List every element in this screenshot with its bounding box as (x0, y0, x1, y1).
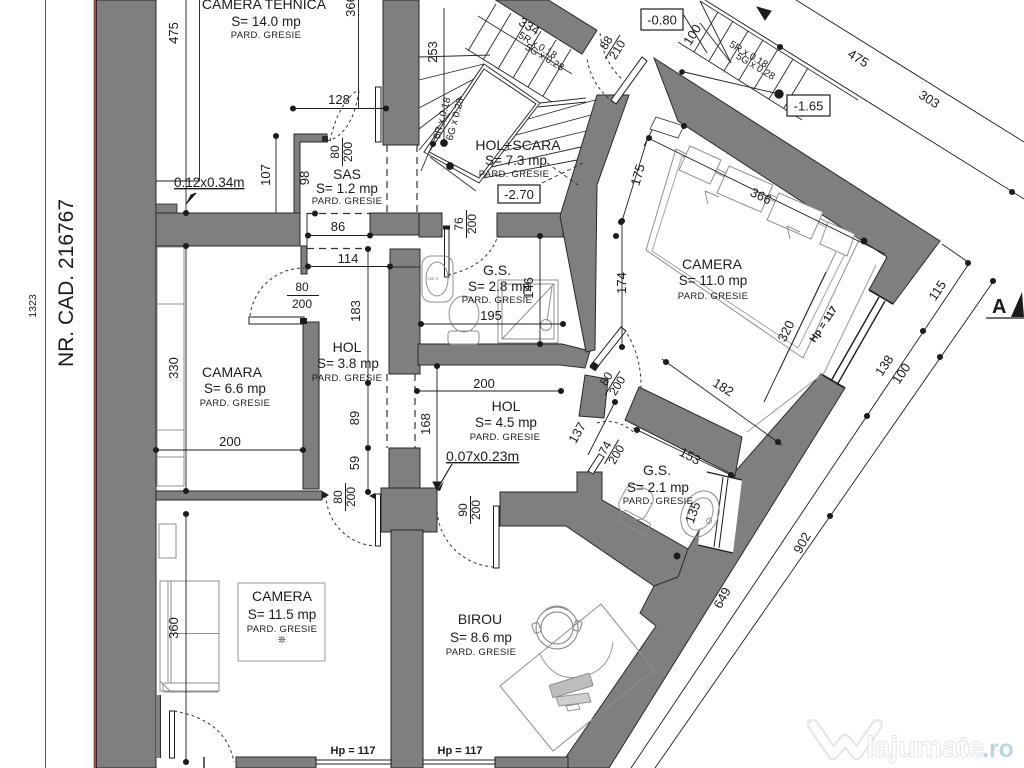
svg-text:PARD. GRESIE: PARD. GRESIE (479, 169, 549, 180)
svg-text:PARD. GRESIE: PARD. GRESIE (312, 196, 382, 207)
svg-text:HOL+SCARA: HOL+SCARA (475, 137, 561, 153)
svg-text:CAMERA TEHNICA: CAMERA TEHNICA (202, 0, 327, 12)
svg-text:146: 146 (521, 277, 536, 299)
svg-text:CAMERA: CAMERA (682, 256, 743, 272)
svg-text:360: 360 (166, 617, 181, 639)
svg-text:CBI-0: CBI-0 (427, 276, 439, 281)
svg-text:174: 174 (614, 272, 629, 294)
svg-text:SAS: SAS (333, 166, 361, 182)
svg-text:80: 80 (295, 280, 309, 294)
svg-text:G.S.: G.S. (643, 462, 671, 478)
svg-text:86: 86 (331, 219, 345, 234)
svg-text:183: 183 (348, 300, 363, 322)
svg-text:200: 200 (469, 500, 483, 520)
svg-text:S= 6.6 mp: S= 6.6 mp (204, 381, 266, 396)
svg-text:PARD. GRESIE: PARD. GRESIE (470, 432, 540, 443)
svg-text:❊: ❊ (278, 635, 286, 646)
svg-text:89: 89 (347, 411, 362, 425)
svg-text:G.S.: G.S. (483, 262, 511, 278)
svg-text:98: 98 (297, 171, 312, 185)
svg-text:330: 330 (166, 357, 181, 379)
svg-text:80: 80 (331, 490, 345, 504)
svg-text:-0.80: -0.80 (647, 13, 677, 28)
svg-text:PARD. GRESIE: PARD. GRESIE (247, 624, 317, 635)
svg-text:-1.65: -1.65 (794, 99, 824, 114)
svg-text:PARD. GRESIE: PARD. GRESIE (312, 373, 382, 384)
svg-text:A: A (992, 296, 1006, 318)
svg-text:200: 200 (465, 214, 479, 234)
svg-text:168: 168 (418, 413, 433, 435)
svg-text:.ro: .ro (982, 735, 1014, 763)
svg-text:HOL: HOL (333, 339, 362, 355)
svg-text:0.07x0.23m: 0.07x0.23m (446, 448, 519, 464)
svg-text:PARD. GRESIE: PARD. GRESIE (446, 647, 516, 658)
svg-text:BIROU: BIROU (458, 611, 502, 627)
svg-text:S= 7.3 mp: S= 7.3 mp (485, 153, 547, 168)
svg-text:CAMERA: CAMERA (252, 588, 313, 604)
svg-text:195: 195 (480, 308, 502, 323)
svg-text:S= 2.1 mp: S= 2.1 mp (627, 480, 689, 495)
svg-text:S= 4.5 mp: S= 4.5 mp (475, 415, 537, 430)
svg-text:S= 14.0 mp: S= 14.0 mp (231, 14, 300, 29)
svg-text:S= 1.2 mp: S= 1.2 mp (316, 181, 378, 196)
svg-text:59: 59 (347, 456, 362, 470)
svg-text:114: 114 (338, 251, 359, 266)
svg-text:S= 8.6 mp: S= 8.6 mp (450, 630, 512, 645)
svg-text:S= 11.0 mp: S= 11.0 mp (679, 273, 747, 288)
svg-text:200: 200 (341, 142, 355, 162)
svg-text:253: 253 (425, 41, 440, 63)
svg-text:200: 200 (473, 376, 495, 391)
svg-text:0.12x0.34m: 0.12x0.34m (174, 175, 245, 190)
svg-text:80: 80 (328, 145, 342, 159)
svg-text:HOL: HOL (492, 398, 521, 414)
svg-text:76: 76 (452, 217, 466, 231)
svg-text:Hp = 117: Hp = 117 (331, 745, 376, 757)
svg-text:lajumate: lajumate (866, 731, 984, 764)
svg-text:S= 11.5 mp: S= 11.5 mp (248, 607, 316, 622)
svg-text:200: 200 (292, 297, 312, 311)
svg-text:PARD. GRESIE: PARD. GRESIE (623, 496, 693, 507)
svg-text:PARD. GRESIE: PARD. GRESIE (678, 291, 748, 302)
svg-text:-2.70: -2.70 (504, 187, 534, 202)
svg-text:200: 200 (344, 487, 358, 507)
svg-text:128: 128 (328, 92, 350, 107)
svg-text:200: 200 (219, 434, 241, 449)
svg-text:90: 90 (456, 503, 470, 517)
svg-text:PARD. GRESIE: PARD. GRESIE (231, 30, 301, 41)
svg-text:S= 3.8 mp: S= 3.8 mp (317, 356, 379, 371)
svg-text:NR. CAD. 216767: NR. CAD. 216767 (55, 199, 78, 367)
svg-text:366: 366 (343, 0, 358, 17)
svg-text:CAMARA: CAMARA (202, 364, 263, 380)
svg-text:107: 107 (258, 164, 273, 186)
svg-text:1323: 1323 (27, 294, 39, 318)
svg-text:475: 475 (166, 22, 181, 44)
svg-text:Hp = 117: Hp = 117 (438, 745, 483, 757)
svg-text:PARD. GRESIE: PARD. GRESIE (200, 398, 270, 409)
